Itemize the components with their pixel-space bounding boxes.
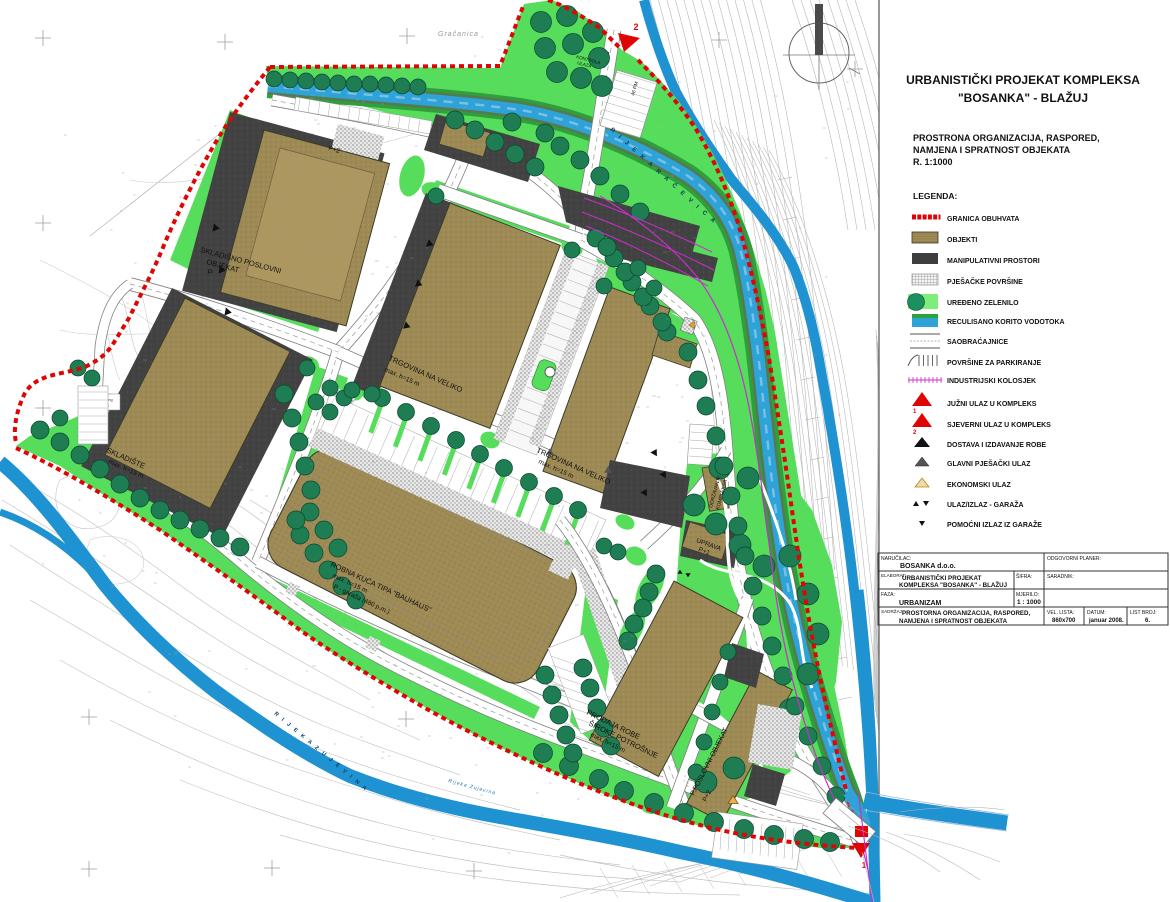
svg-text:POVRŠINE ZA PARKIRANJE: POVRŠINE ZA PARKIRANJE xyxy=(947,358,1041,367)
svg-text:860x700: 860x700 xyxy=(1052,618,1076,624)
svg-text:URBANISTIČKI PROJEKAT KOMPLEKS: URBANISTIČKI PROJEKAT KOMPLEKSA xyxy=(906,72,1140,87)
svg-text:"BOSANKA" - BLAŽUJ: "BOSANKA" - BLAŽUJ xyxy=(958,90,1088,105)
svg-text:SJEVERNI ULAZ U KOMPLEKS: SJEVERNI ULAZ U KOMPLEKS xyxy=(947,422,1051,429)
svg-text:EKONOMSKI ULAZ: EKONOMSKI ULAZ xyxy=(947,482,1012,489)
svg-text:NAMJENA I SPRATNOST OBJEKATA: NAMJENA I SPRATNOST OBJEKATA xyxy=(913,145,1071,155)
svg-text:1 : 1000: 1 : 1000 xyxy=(1017,599,1041,606)
svg-text:BOSANKA d.o.o.: BOSANKA d.o.o. xyxy=(900,563,956,570)
svg-text:UREĐENO ZELENILO: UREĐENO ZELENILO xyxy=(947,300,1019,307)
svg-text:NARUČILAC:: NARUČILAC: xyxy=(881,555,911,562)
svg-text:NAMJENA I SPRATNOST OBJEKATA: NAMJENA I SPRATNOST OBJEKATA xyxy=(899,618,1008,625)
svg-text:DOSTAVA I IZDAVANJE ROBE: DOSTAVA I IZDAVANJE ROBE xyxy=(947,442,1046,449)
svg-text:PROSTRONA ORGANIZACIJA, RASPOR: PROSTRONA ORGANIZACIJA, RASPORED, xyxy=(913,133,1100,143)
svg-text:MJERILO:: MJERILO: xyxy=(1016,592,1039,598)
svg-text:LEGENDA:: LEGENDA: xyxy=(913,191,958,201)
svg-text:SAOBRAĆAJNICE: SAOBRAĆAJNICE xyxy=(947,337,1008,346)
svg-text:INDUSTRIJSKI KOLOSJEK: INDUSTRIJSKI KOLOSJEK xyxy=(947,378,1036,385)
svg-text:OBJEKTI: OBJEKTI xyxy=(947,237,977,244)
svg-text:SARADNIK:: SARADNIK: xyxy=(1047,574,1074,580)
svg-text:GRANICA OBUHVATA: GRANICA OBUHVATA xyxy=(947,216,1019,223)
svg-text:Gračanica: Gračanica xyxy=(438,31,479,38)
svg-text:MANIPULATIVNI PROSTORI: MANIPULATIVNI PROSTORI xyxy=(947,258,1040,265)
svg-text:URBANISTIČKI PROJEKAT: URBANISTIČKI PROJEKAT xyxy=(902,575,982,582)
svg-text:ŠIFRA:: ŠIFRA: xyxy=(1016,573,1032,580)
svg-text:R. 1:1000: R. 1:1000 xyxy=(913,157,953,167)
svg-text:ULAZ/IZLAZ - GARAŽA: ULAZ/IZLAZ - GARAŽA xyxy=(947,500,1024,509)
svg-text:GLAVNI PJEŠAČKI ULAZ: GLAVNI PJEŠAČKI ULAZ xyxy=(947,459,1031,468)
svg-text:6.: 6. xyxy=(1145,618,1150,624)
svg-text:POMOĆNI IZLAZ IZ GARAŽE: POMOĆNI IZLAZ IZ GARAŽE xyxy=(947,520,1042,529)
svg-text:URBANIZAM: URBANIZAM xyxy=(899,600,942,607)
svg-text:2: 2 xyxy=(633,22,638,32)
svg-text:JUŽNI ULAZ U KOMPLEKS: JUŽNI ULAZ U KOMPLEKS xyxy=(947,399,1037,408)
svg-text:januar 2008.: januar 2008. xyxy=(1088,618,1124,624)
svg-text:ODGOVORNI PLANER:: ODGOVORNI PLANER: xyxy=(1047,556,1101,562)
svg-text:RECULISANO KORITO VODOTOKA: RECULISANO KORITO VODOTOKA xyxy=(947,319,1065,326)
svg-text:SADRŽAJ:: SADRŽAJ: xyxy=(881,607,903,614)
svg-text:PJEŠAČKE POVRŠINE: PJEŠAČKE POVRŠINE xyxy=(947,277,1023,286)
svg-text:VEL. LISTA:: VEL. LISTA: xyxy=(1047,610,1074,616)
svg-text:LIST BROJ:: LIST BROJ: xyxy=(1130,610,1157,616)
svg-text:DATUM:: DATUM: xyxy=(1087,610,1106,616)
svg-text:FAZA:: FAZA: xyxy=(881,592,895,598)
svg-text:KOMPLEKSA "BOSANKA" - BLAŽUJ: KOMPLEKSA "BOSANKA" - BLAŽUJ xyxy=(899,581,1008,589)
svg-text:PROSTORNA ORGANIZACIJA, RASPOR: PROSTORNA ORGANIZACIJA, RASPORED, xyxy=(902,610,1031,617)
